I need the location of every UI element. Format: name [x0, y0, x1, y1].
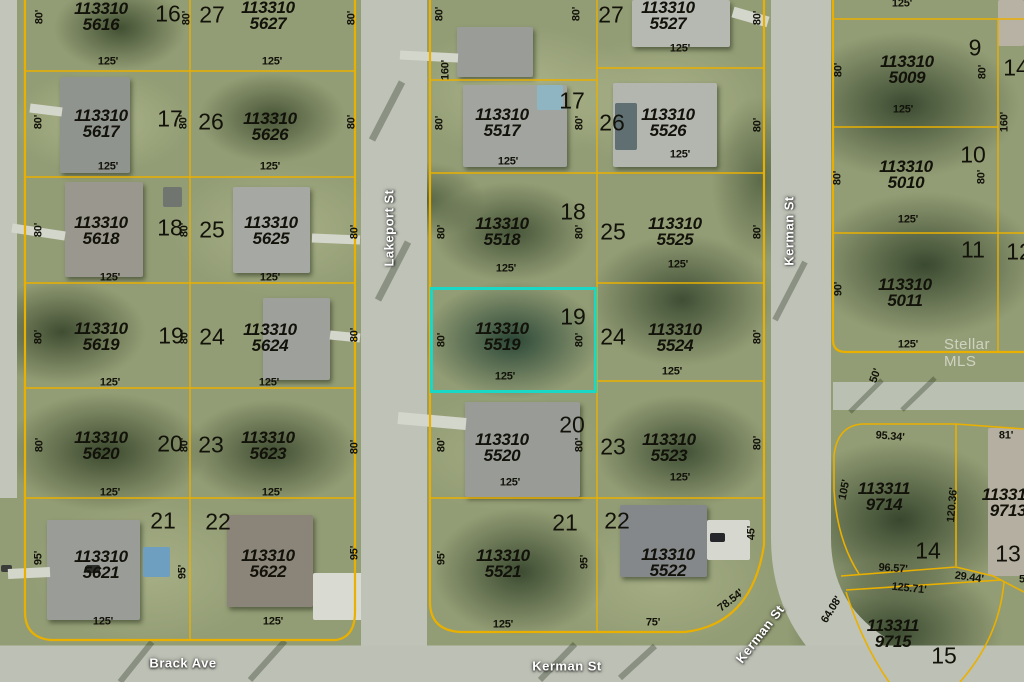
dimension-label: 95': [350, 546, 361, 560]
dimension-label: 80': [834, 63, 845, 77]
parcel-id-label: 113310 5518: [475, 216, 529, 248]
dimension-label: 125': [495, 372, 515, 383]
parcel-id-label: 113310 5517: [475, 107, 529, 139]
dimension-label: 80': [575, 333, 586, 347]
parcel-id-label: 113311 9713: [982, 487, 1024, 519]
dimension-label: 80': [34, 330, 45, 344]
lot-number-label: 26: [599, 112, 625, 135]
dimension-label: 125': [500, 478, 520, 489]
parcel-id-label: 113311 9714: [858, 481, 910, 513]
parcel-id-label: 113310 5010: [879, 159, 933, 191]
lot-number-label: 9: [969, 37, 982, 60]
dimension-label: 80': [437, 438, 448, 452]
dimension-label: 80': [350, 225, 361, 239]
lot-number-label: 18: [560, 201, 586, 224]
dimension-label: 80': [180, 438, 191, 452]
lot-number-label: 26: [198, 111, 224, 134]
dimension-label: 80': [572, 7, 583, 21]
dimension-label: 80': [753, 11, 764, 25]
dimension-label: 80': [34, 223, 45, 237]
lot-number-label: 23: [198, 434, 224, 457]
dimension-label: 80': [833, 171, 844, 185]
dimension-label: 160': [441, 60, 452, 80]
lot-number-label: 19: [560, 306, 586, 329]
dimension-label: 160': [1000, 112, 1011, 132]
dimension-label: 125': [898, 215, 918, 226]
dimension-label: 125': [98, 57, 118, 68]
parcel-id-label: 113310 5009: [880, 54, 934, 86]
dimension-label: 80': [180, 223, 191, 237]
lot-number-label: 12: [1006, 241, 1024, 264]
dimension-label: 75': [646, 618, 660, 629]
dimension-label: 80': [435, 7, 446, 21]
dimension-label: 125': [260, 273, 280, 284]
parcel-id-label: 113310 5627: [241, 0, 295, 32]
dimension-label: 125': [100, 273, 120, 284]
parcel-id-label: 113310 5011: [878, 277, 932, 309]
dimension-label: 80': [35, 10, 46, 24]
dimension-label: 5: [1019, 575, 1024, 586]
dimension-label: 80': [753, 118, 764, 132]
parcel-id-label: 113310 5616: [74, 1, 128, 33]
parcel-id-label: 113310 5526: [641, 107, 695, 139]
dimension-label: 80': [34, 115, 45, 129]
dimension-label: 95': [437, 551, 448, 565]
lot-number-label: 14: [915, 540, 941, 563]
dimension-label: 95': [178, 565, 189, 579]
lot-number-label: 21: [552, 512, 578, 535]
parcel-id-label: 113311 9715: [867, 618, 919, 650]
dimension-label: 96.57': [878, 563, 908, 576]
stellar-mls-watermark: Stellar MLS: [944, 336, 1024, 370]
dimension-label: 80': [977, 170, 988, 184]
dimension-label: 125': [262, 57, 282, 68]
dimension-label: 125': [98, 162, 118, 173]
dimension-label: 45': [747, 526, 758, 540]
dimension-label: 80': [435, 116, 446, 130]
dimension-label: 125': [260, 162, 280, 173]
dimension-label: 80': [182, 11, 193, 25]
parcel-id-label: 113310 5622: [241, 548, 295, 580]
dimension-label: 80': [575, 438, 586, 452]
parcel-id-label: 113310 5625: [244, 215, 298, 247]
street-label: Kerman St: [783, 196, 796, 266]
lot-number-label: 11: [961, 239, 985, 262]
dimension-label: 125': [668, 260, 688, 271]
aerial-parcel-map: 113310 5616113310 5627113310 5617113310 …: [0, 0, 1024, 682]
dimension-label: 125': [100, 488, 120, 499]
dimension-label: 80': [347, 11, 358, 25]
dimension-label: 125': [662, 367, 682, 378]
dimension-label: 80': [180, 330, 191, 344]
lot-number-label: 22: [604, 510, 630, 533]
parcel-id-label: 113310 5621: [74, 549, 128, 581]
lot-number-label: 24: [600, 326, 626, 349]
dimension-label: 125': [670, 150, 690, 161]
lot-number-label: 16: [155, 3, 181, 26]
street-label: Lakeport St: [383, 189, 396, 266]
parcel-id-label: 113310 5520: [475, 432, 529, 464]
dimension-label: 125': [100, 378, 120, 389]
lot-number-label: 21: [150, 510, 176, 533]
dimension-label: 125': [898, 340, 918, 351]
parcel-id-label: 113310 5525: [648, 216, 702, 248]
parcel-id-label: 113310 5620: [74, 430, 128, 462]
dimension-label: 125': [892, 0, 912, 10]
dimension-label: 125': [498, 157, 518, 168]
parcel-id-label: 113310 5523: [642, 432, 696, 464]
dimension-label: 80': [350, 328, 361, 342]
dimension-label: 125': [893, 105, 913, 116]
parcel-id-label: 113310 5519: [475, 321, 529, 353]
street-label: Kerman St: [532, 660, 602, 673]
dimension-label: 80': [437, 333, 448, 347]
dimension-label: 125': [263, 617, 283, 628]
lot-number-label: 27: [199, 4, 225, 27]
dimension-label: 95': [34, 551, 45, 565]
dimension-label: 80': [575, 116, 586, 130]
parcel-id-label: 113310 5524: [648, 322, 702, 354]
lot-number-label: 13: [995, 543, 1021, 566]
dimension-label: 125': [259, 378, 279, 389]
lot-number-label: 25: [199, 219, 225, 242]
dimension-label: 80': [179, 115, 190, 129]
lot-number-label: 27: [598, 4, 624, 27]
dimension-label: 80': [978, 65, 989, 79]
dimension-label: 80': [753, 225, 764, 239]
parcel-id-label: 113310 5623: [241, 430, 295, 462]
lot-number-label: 22: [205, 511, 231, 534]
lot-number-label: 17: [559, 90, 585, 113]
dimension-label: 90': [834, 282, 845, 296]
dimension-label: 80': [437, 225, 448, 239]
lot-number-label: 20: [559, 414, 585, 437]
dimension-label: 80': [753, 436, 764, 450]
parcel-id-label: 113310 5522: [641, 547, 695, 579]
lot-number-label: 10: [960, 144, 986, 167]
dimension-label: 125': [670, 44, 690, 55]
lot-number-label: 23: [600, 436, 626, 459]
lot-number-label: 24: [199, 326, 225, 349]
dimension-label: 80': [350, 440, 361, 454]
parcel-id-label: 113310 5619: [74, 321, 128, 353]
lot-number-label: 25: [600, 221, 626, 244]
dimension-label: 95': [580, 555, 591, 569]
dimension-label: 80': [347, 115, 358, 129]
parcel-id-label: 113310 5527: [641, 0, 695, 32]
dimension-label: 125': [93, 617, 113, 628]
dimension-label: 80': [575, 225, 586, 239]
dimension-label: 125': [496, 264, 516, 275]
lot-number-label: 14: [1003, 57, 1024, 80]
dimension-label: 80': [35, 438, 46, 452]
lot-number-label: 15: [931, 645, 957, 668]
dimension-label: 125': [493, 620, 513, 631]
street-label: Brack Ave: [149, 657, 216, 670]
dimension-label: 80': [753, 330, 764, 344]
parcel-id-label: 113310 5617: [74, 108, 128, 140]
parcel-id-label: 113310 5521: [476, 548, 530, 580]
parcel-id-label: 113310 5624: [243, 322, 297, 354]
parcel-id-label: 113310 5626: [243, 111, 297, 143]
dimension-label: 125': [262, 488, 282, 499]
dimension-label: 125': [670, 473, 690, 484]
parcel-id-label: 113310 5618: [74, 215, 128, 247]
dimension-label: 81': [999, 431, 1013, 442]
